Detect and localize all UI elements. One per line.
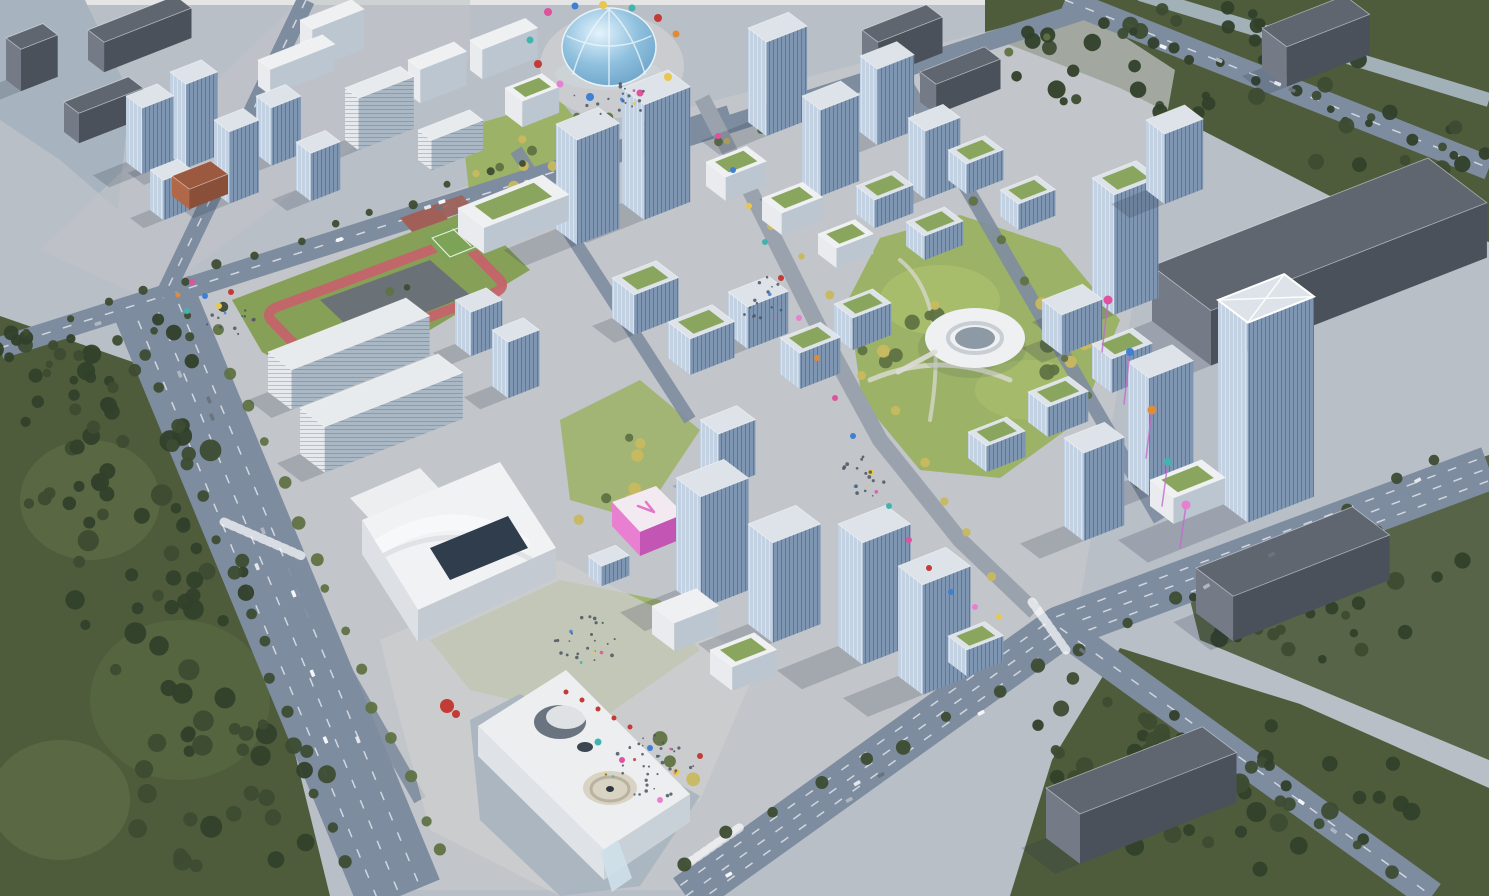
ring-building-courtyard (955, 327, 995, 349)
scene-svg (0, 0, 1489, 896)
museum-roof-oculus (577, 742, 593, 752)
museum-roof-disc-crescent (546, 705, 586, 729)
museum-amphitheater-center (606, 786, 614, 792)
aerial-masterplan-image (0, 0, 1489, 896)
